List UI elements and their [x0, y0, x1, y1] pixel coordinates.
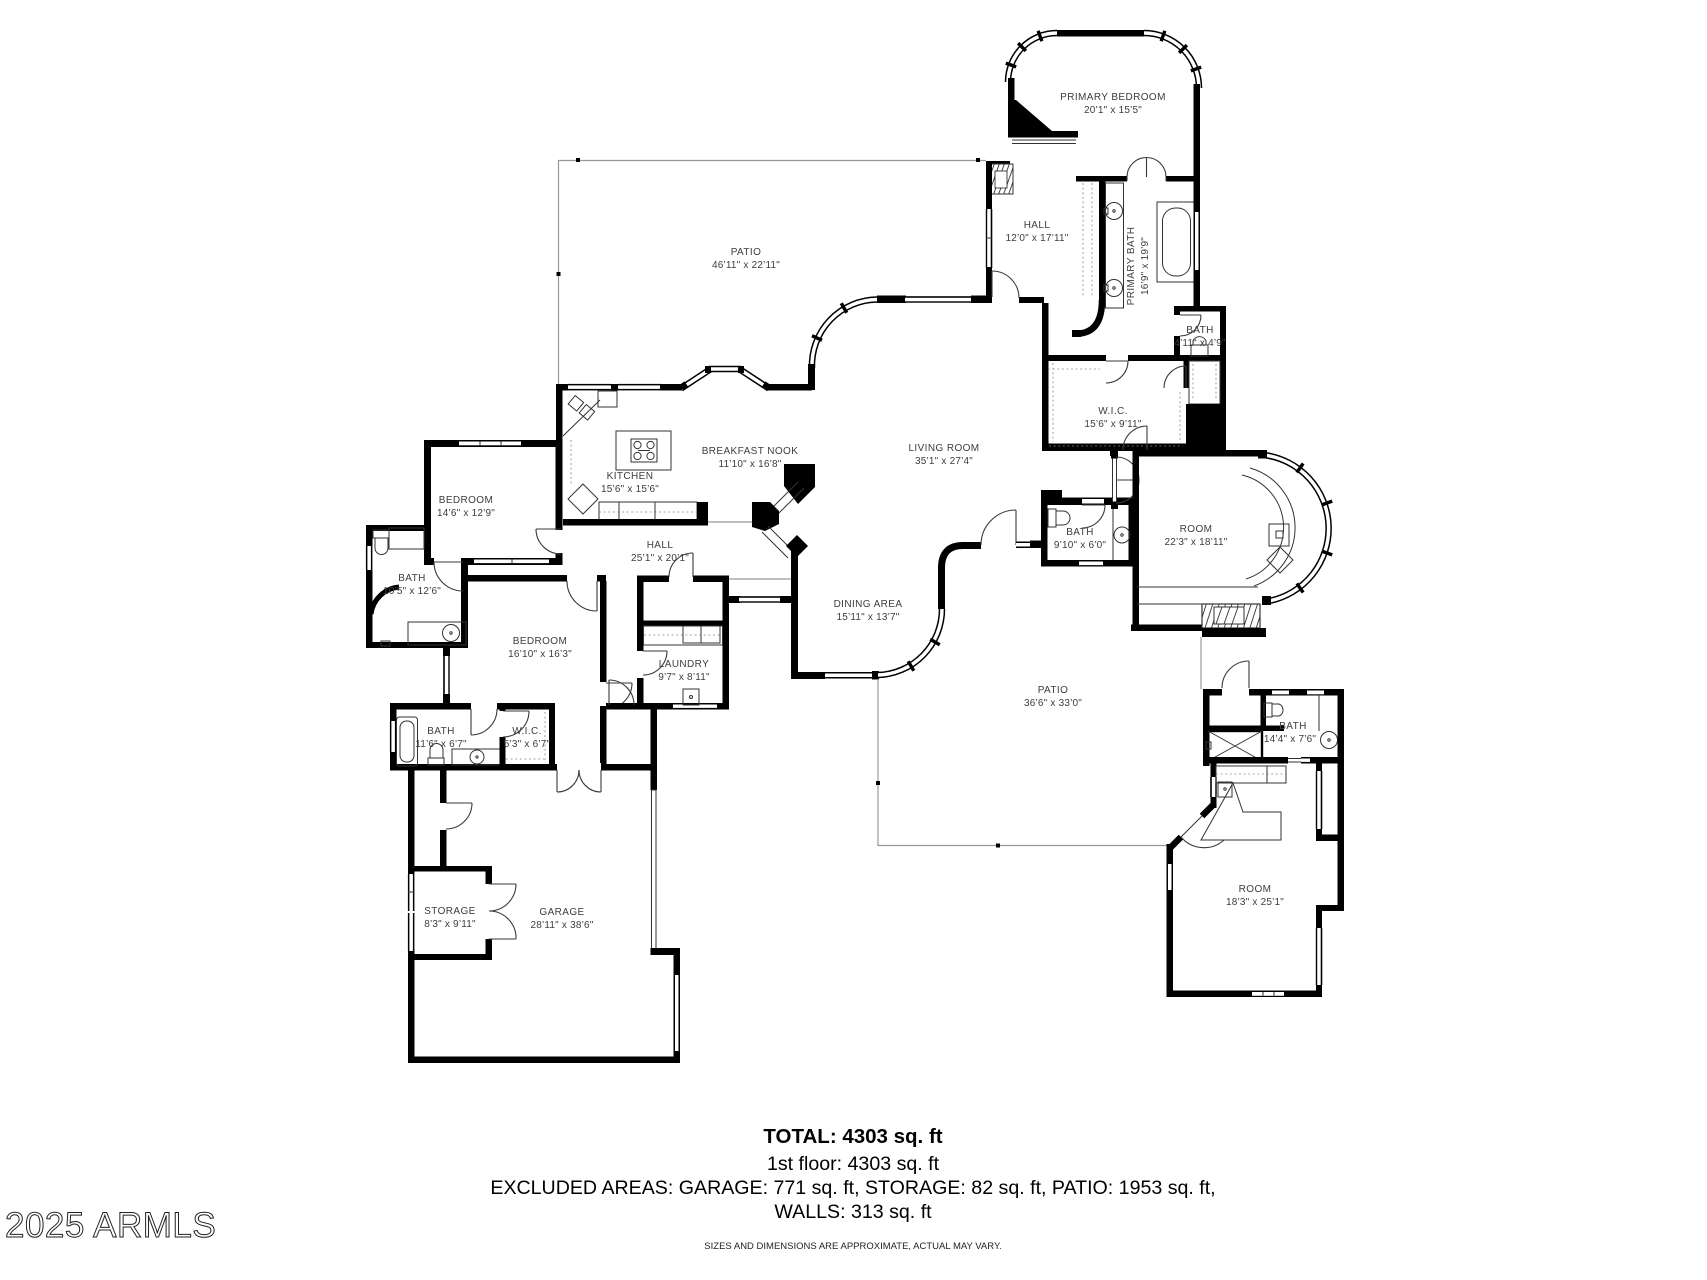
svg-text:1st floor: 4303 sq. ft: 1st floor: 4303 sq. ft [767, 1153, 940, 1175]
svg-text:WALLS: 313 sq. ft: WALLS: 313 sq. ft [774, 1201, 932, 1223]
svg-text:10’5" x 12’6": 10’5" x 12’6" [383, 586, 441, 597]
svg-text:BATH: BATH [1279, 721, 1307, 732]
svg-text:BREAKFAST NOOK: BREAKFAST NOOK [702, 446, 799, 457]
svg-text:BEDROOM: BEDROOM [513, 636, 567, 647]
svg-text:2025 ARMLS: 2025 ARMLS [5, 1206, 216, 1245]
svg-text:11’10" x 16’8": 11’10" x 16’8" [718, 459, 781, 470]
svg-text:28’11" x 38’6": 28’11" x 38’6" [530, 920, 593, 931]
svg-text:LAUNDRY: LAUNDRY [659, 659, 709, 670]
svg-text:KITCHEN: KITCHEN [607, 471, 654, 482]
svg-text:PATIO: PATIO [1038, 685, 1069, 696]
svg-text:BATH: BATH [1066, 527, 1094, 538]
svg-text:25’1" x 20’1": 25’1" x 20’1" [631, 553, 689, 564]
svg-text:HALL: HALL [1024, 220, 1051, 231]
svg-text:BEDROOM: BEDROOM [439, 495, 493, 506]
svg-text:PRIMARY BATH: PRIMARY BATH [1126, 227, 1137, 306]
svg-text:DINING AREA: DINING AREA [834, 599, 903, 610]
svg-text:GARAGE: GARAGE [539, 907, 584, 918]
svg-text:W.I.C.: W.I.C. [1098, 406, 1128, 417]
svg-text:14’4" x 7’6": 14’4" x 7’6" [1264, 734, 1317, 745]
svg-text:15’6" x 9’11": 15’6" x 9’11" [1084, 419, 1142, 430]
svg-text:ROOM: ROOM [1180, 524, 1213, 535]
svg-text:16’9" x 19’9": 16’9" x 19’9" [1140, 237, 1151, 295]
svg-text:16’10" x 16’3": 16’10" x 16’3" [508, 649, 572, 660]
svg-text:ROOM: ROOM [1239, 884, 1272, 895]
svg-text:STORAGE: STORAGE [424, 906, 476, 917]
svg-text:18’3" x 25’1": 18’3" x 25’1" [1226, 897, 1284, 908]
svg-text:PRIMARY BEDROOM: PRIMARY BEDROOM [1060, 92, 1166, 103]
svg-text:4’11" x 4’9": 4’11" x 4’9" [1174, 338, 1226, 349]
svg-text:36’6" x 33’0": 36’6" x 33’0" [1024, 698, 1082, 709]
svg-text:5’3" x 6’7": 5’3" x 6’7" [504, 739, 551, 750]
svg-text:9’7" x 8’11": 9’7" x 8’11" [658, 672, 710, 683]
svg-text:46’11" x 22’11": 46’11" x 22’11" [712, 260, 780, 271]
svg-text:EXCLUDED AREAS: GARAGE: 771 sq: EXCLUDED AREAS: GARAGE: 771 sq. ft, STOR… [490, 1177, 1215, 1199]
svg-text:9’10" x 6’0": 9’10" x 6’0" [1054, 540, 1107, 551]
svg-text:BATH: BATH [398, 573, 426, 584]
svg-text:22’3" x 18’11": 22’3" x 18’11" [1164, 537, 1227, 548]
svg-text:BATH: BATH [427, 726, 455, 737]
svg-text:LIVING ROOM: LIVING ROOM [908, 443, 979, 454]
svg-text:TOTAL: 4303 sq. ft: TOTAL: 4303 sq. ft [763, 1125, 942, 1148]
svg-text:35’1" x 27’4": 35’1" x 27’4" [915, 456, 973, 467]
svg-text:8’3" x 9’11": 8’3" x 9’11" [424, 919, 476, 930]
svg-text:20’1" x 15’5": 20’1" x 15’5" [1084, 105, 1142, 116]
svg-text:HALL: HALL [647, 540, 674, 551]
svg-text:PATIO: PATIO [731, 247, 762, 258]
svg-text:15’11" x 13’7": 15’11" x 13’7" [836, 612, 899, 623]
svg-text:11’6" x 6’7": 11’6" x 6’7" [415, 739, 467, 750]
svg-text:15’6" x 15’6": 15’6" x 15’6" [601, 484, 659, 495]
svg-text:W.I.C.: W.I.C. [512, 726, 542, 737]
svg-text:SIZES AND DIMENSIONS ARE APPRO: SIZES AND DIMENSIONS ARE APPROXIMATE, AC… [704, 1241, 1001, 1252]
svg-text:12’0" x 17’11": 12’0" x 17’11" [1005, 233, 1068, 244]
svg-text:BATH: BATH [1186, 325, 1214, 336]
svg-text:14’6" x 12’9": 14’6" x 12’9" [437, 508, 495, 519]
